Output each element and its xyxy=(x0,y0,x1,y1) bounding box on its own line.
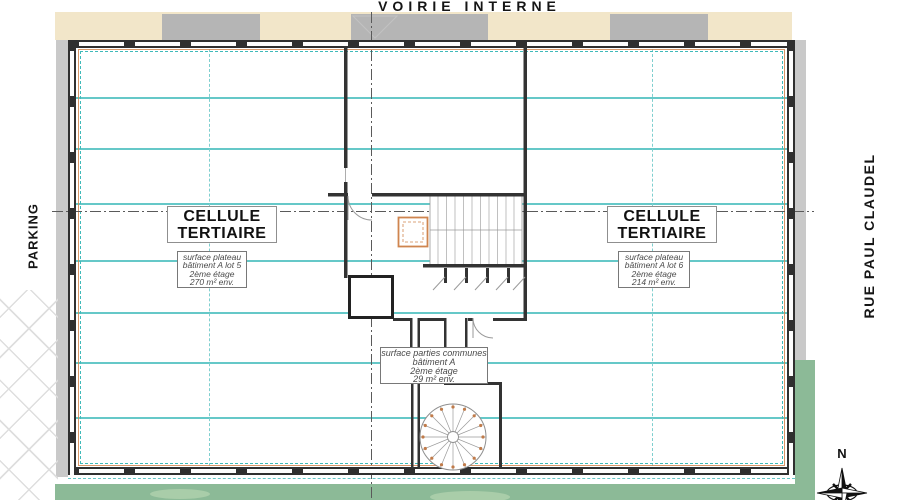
info-line: 214 m² env. xyxy=(619,278,689,286)
surface-info-common: surface parties communes bâtiment A 2ème… xyxy=(380,347,488,384)
street-label-right: RUE PAUL CLAUDEL xyxy=(861,153,877,318)
cell-name: CELLULE TERTIAIRE xyxy=(168,208,276,242)
service-room xyxy=(350,277,393,318)
surface-info-left: surface plateau bâtiment A lot 5 2ème ét… xyxy=(177,251,247,288)
info-line: 270 m² env. xyxy=(178,278,246,286)
exterior-wall-east xyxy=(787,40,795,475)
street-label-left: PARKING xyxy=(26,203,41,269)
sidewalk-right xyxy=(795,40,806,365)
street-label-top: VOIRIE INTERNE xyxy=(352,0,587,14)
exterior-wall-west xyxy=(68,40,76,475)
straight-staircase xyxy=(430,195,522,265)
toilet-stalls xyxy=(433,268,527,290)
canopy-block xyxy=(162,14,260,40)
north-label: N xyxy=(837,446,846,461)
compass-rose: N xyxy=(810,444,874,500)
parking-hatch-area xyxy=(0,290,58,500)
floor-plan-canvas: CELLULE TERTIAIRE CELLULE TERTIAIRE surf… xyxy=(0,0,900,500)
cell-label-left: CELLULE TERTIAIRE xyxy=(167,206,277,243)
elevator-shaft xyxy=(399,218,428,247)
shrub xyxy=(150,489,210,499)
spiral-staircase xyxy=(420,404,486,470)
surface-info-right: surface plateau bâtiment A lot 6 2ème ét… xyxy=(618,251,690,288)
cell-name: CELLULE TERTIAIRE xyxy=(608,208,716,242)
shrub xyxy=(430,491,510,500)
cell-label-right: CELLULE TERTIAIRE xyxy=(607,206,717,243)
canopy-block xyxy=(610,14,708,40)
info-line: 29 m² env. xyxy=(381,375,487,384)
building-core xyxy=(320,40,560,480)
entrance-marker-triangle xyxy=(352,14,398,40)
